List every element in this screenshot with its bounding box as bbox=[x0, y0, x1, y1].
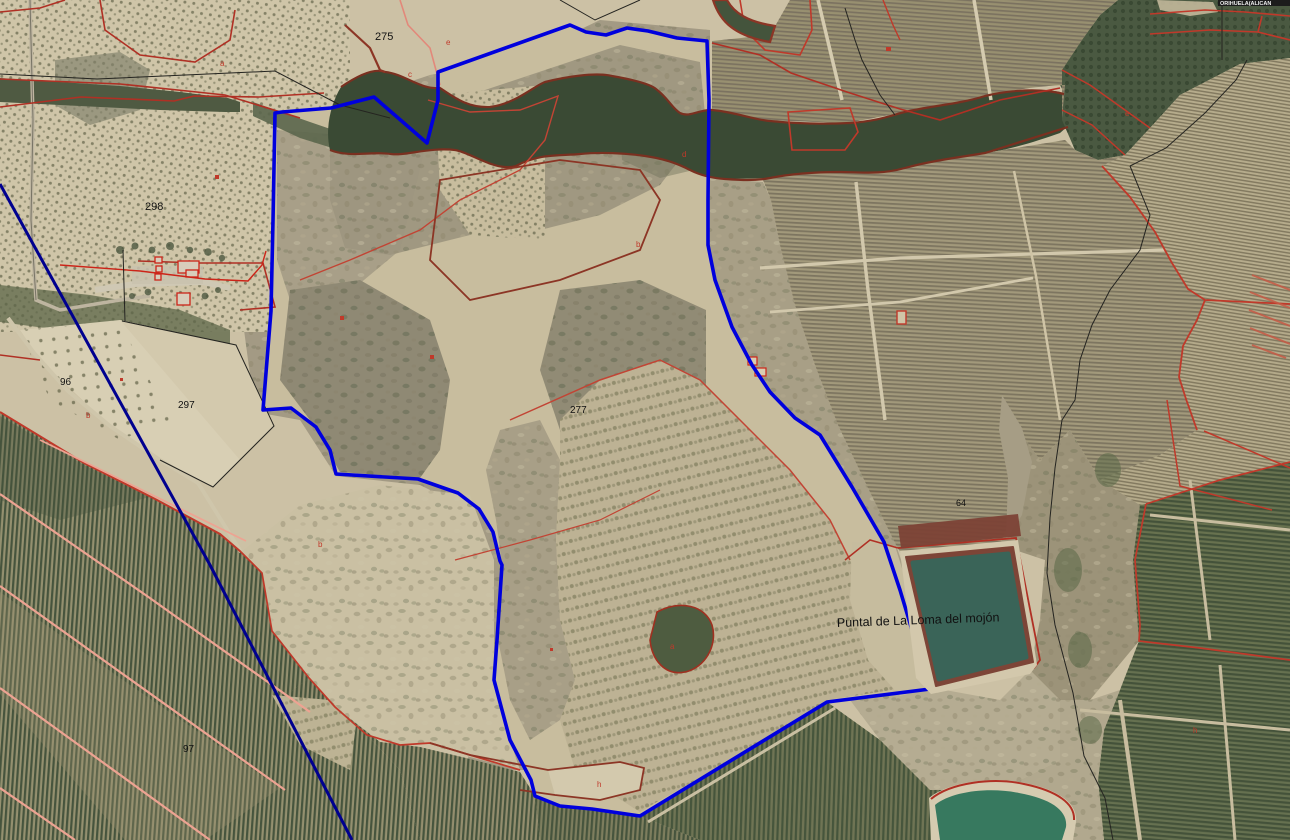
svg-text:d: d bbox=[682, 150, 686, 159]
svg-text:b: b bbox=[636, 240, 641, 249]
svg-text:a: a bbox=[220, 59, 225, 68]
svg-text:h: h bbox=[597, 780, 601, 789]
svg-text:275: 275 bbox=[375, 31, 393, 43]
svg-text:b: b bbox=[318, 540, 323, 549]
svg-text:e: e bbox=[446, 38, 451, 47]
svg-text:a: a bbox=[670, 642, 675, 651]
svg-text:c: c bbox=[408, 70, 412, 79]
svg-text:96: 96 bbox=[60, 377, 72, 388]
svg-text:e: e bbox=[1125, 109, 1130, 118]
svg-text:97: 97 bbox=[183, 744, 195, 755]
svg-text:h: h bbox=[1193, 726, 1197, 735]
svg-text:b: b bbox=[86, 411, 91, 420]
svg-text:277: 277 bbox=[570, 405, 587, 416]
svg-text:297: 297 bbox=[178, 400, 195, 411]
svg-text:ORIHUELA(ALICAN: ORIHUELA(ALICAN bbox=[1220, 1, 1271, 7]
svg-text:64: 64 bbox=[956, 498, 966, 508]
svg-text:298: 298 bbox=[145, 201, 163, 213]
